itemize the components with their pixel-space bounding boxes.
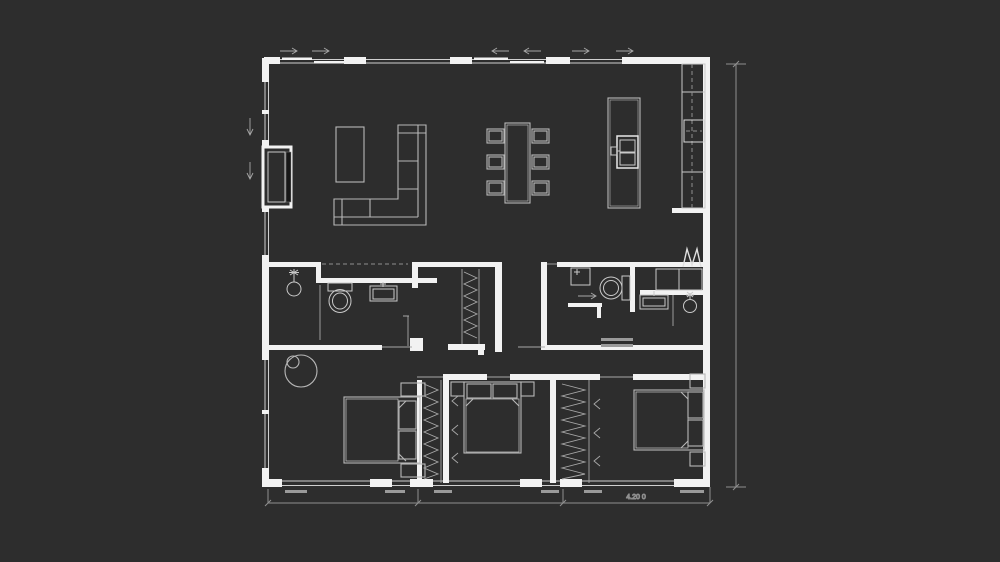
dimension-right [726,61,746,490]
bathroom-1 [287,264,408,340]
sofa [334,125,426,225]
washbasin [370,282,397,301]
plant-icon [285,355,317,387]
hanging-clothes-icon [424,384,438,479]
interior-walls [266,208,707,483]
bathroom-door-leaf [403,316,409,346]
toilet [328,283,352,313]
island-sink [611,136,638,168]
floor-plan-page: 4.20 0 [0,0,1000,562]
bed-2 [464,382,521,453]
dining-chairs [487,129,549,195]
toilet-2 [600,276,630,300]
door-swing-arrow-icon [578,293,596,299]
nightstand [451,382,464,396]
laundry-area [640,249,702,326]
vanity-faucet-icon [574,269,580,275]
fireplace [263,147,291,207]
hanging-clothes-icon [464,272,477,338]
closet-door-marks [594,399,600,466]
island-faucet-icon [611,147,620,155]
window-slide-arrow-icons [247,48,633,179]
nightstand [521,382,534,396]
bed-3 [634,390,704,450]
exterior-walls [262,57,710,487]
window-sills [285,490,704,493]
bedroom-3 [634,374,705,466]
shower-head-icon [287,269,301,296]
kitchen-counter [682,64,705,208]
bed-1 [344,397,420,463]
coffee-table [336,127,364,182]
dimension-bottom: 4.20 0 [265,487,713,506]
floor-plan-canvas: 4.20 0 [0,0,1000,562]
hanging-clothes-icon [562,384,585,479]
window-lines [264,58,710,487]
bathroom-2 [571,268,630,300]
shower-head-2-icon [684,292,697,313]
dining-table [505,123,530,203]
wardrobe-2 [562,380,600,483]
dimension-label: 4.20 0 [626,494,646,501]
nightstand [690,452,705,466]
hall-closet [462,269,479,344]
bedroom-2 [451,382,534,453]
closet-door-marks [452,396,458,463]
bedroom-1 [285,355,425,477]
